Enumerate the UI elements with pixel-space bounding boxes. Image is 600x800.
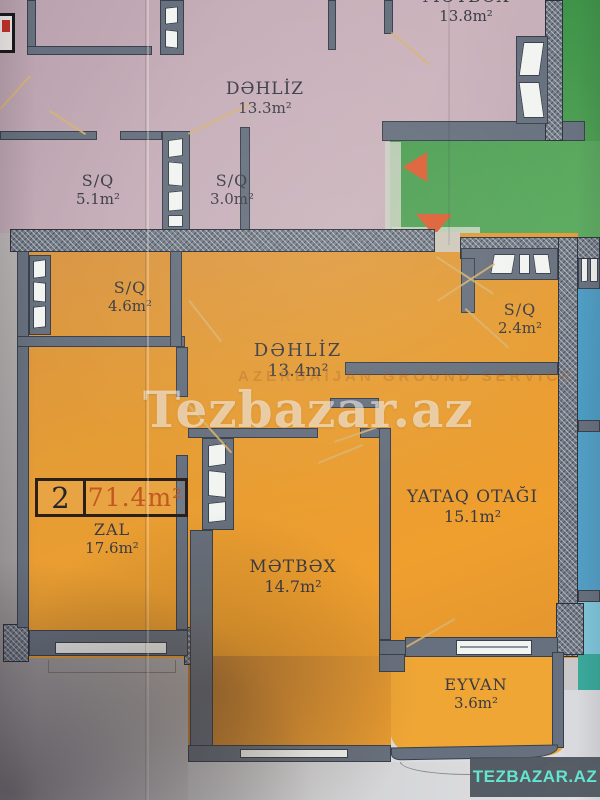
blue-unit-floor — [578, 432, 600, 590]
window-pane — [533, 254, 552, 274]
unit-marker-box — [0, 13, 15, 53]
tezbazar-logo: TEZBAZAR.AZ — [470, 757, 600, 797]
wall — [328, 0, 336, 50]
wall — [120, 131, 162, 140]
outside-right — [564, 690, 600, 762]
vent-slot — [168, 138, 183, 158]
vent-slot — [168, 215, 183, 227]
plan-number: 2 — [38, 481, 86, 514]
blue-unit-window — [581, 257, 588, 283]
wall — [17, 251, 29, 628]
vent-slot — [168, 161, 183, 186]
wall — [17, 336, 185, 347]
wall-hatched-pillar — [556, 603, 584, 655]
room-label-dehliz-top: DƏHLİZ 13.3m² — [195, 80, 335, 117]
unit-marker-glyph — [2, 20, 10, 32]
room-label-sq-30: S/Q 3.0m² — [182, 172, 282, 208]
blue-unit-wall — [578, 590, 600, 602]
vent-slot — [33, 305, 46, 328]
vent-slot — [208, 470, 226, 498]
floorplan-photo: MƏTBƏX 13.8m² DƏHLİZ 13.3m² S/Q 5.1m² S/… — [0, 0, 600, 800]
wall-hatched — [10, 229, 435, 252]
watermark: Tezbazar.az — [143, 380, 474, 439]
vent-slot — [168, 190, 183, 212]
wall — [27, 46, 152, 55]
room-label-eyvan: EYVAN 3.6m² — [398, 676, 554, 712]
green-landing-strip — [385, 142, 401, 238]
window-sill — [48, 660, 176, 673]
blue-unit-floor — [578, 289, 600, 420]
vent-slot — [208, 443, 226, 468]
plan-badge: 2 71.4m² — [35, 478, 188, 517]
room-label-metbex-top: MƏTBƏX 13.8m² — [396, 0, 536, 25]
balcony-sliding-door-rail — [460, 646, 528, 648]
vent-slot — [208, 501, 226, 523]
plan-total-area: 71.4m² — [86, 481, 185, 514]
wall — [27, 0, 36, 52]
room-label-sq-51: S/Q 5.1m² — [48, 172, 148, 208]
blue-unit-window — [590, 257, 598, 282]
teal-area — [578, 654, 600, 690]
vent-slot — [33, 259, 46, 279]
blue-unit-wall — [578, 420, 600, 432]
window-pane — [519, 254, 530, 274]
vent-slot — [165, 29, 178, 48]
room-label-sq-24: S/Q 2.4m² — [460, 301, 580, 337]
room-label-zal: ZAL 17.6m² — [52, 521, 172, 557]
room-label-sq-46: S/Q 4.6m² — [70, 279, 190, 315]
room-label-yataq: YATAQ OTAĞI 15.1m² — [385, 488, 560, 526]
vent-slot — [165, 6, 178, 25]
wall — [190, 530, 213, 762]
wall-hatched-pillar — [3, 624, 29, 662]
outside-bottom-left — [0, 656, 190, 800]
arrow-left-icon — [403, 152, 427, 182]
wall — [384, 0, 393, 34]
vent-slot — [33, 281, 46, 302]
wall-hatched — [558, 237, 578, 657]
wall — [379, 428, 391, 640]
room-label-metbex: MƏTBƏX 14.7m² — [223, 558, 363, 596]
entry-opening — [435, 232, 460, 252]
window-pane — [240, 749, 348, 758]
window-pane — [55, 642, 167, 654]
